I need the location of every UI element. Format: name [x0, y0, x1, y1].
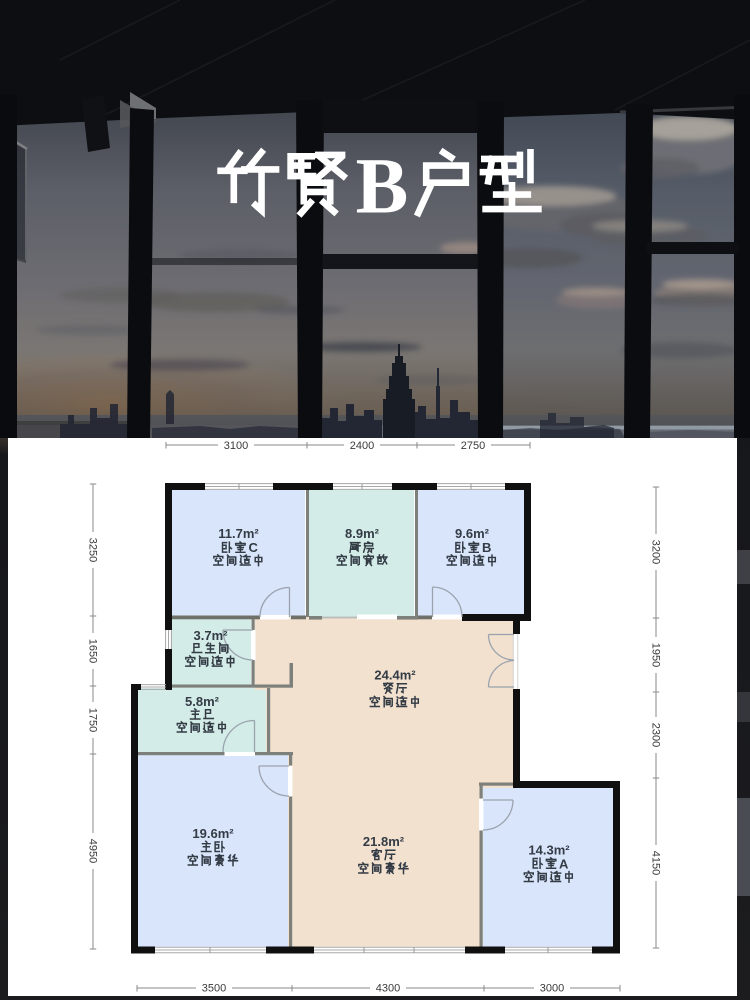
- svg-text:1950: 1950: [650, 643, 662, 667]
- svg-text:3250: 3250: [87, 538, 99, 562]
- svg-text:21.8m²: 21.8m²: [363, 834, 405, 849]
- svg-text:1750: 1750: [87, 708, 99, 732]
- svg-text:2750: 2750: [461, 440, 485, 452]
- svg-text:19.6m²: 19.6m²: [192, 826, 234, 841]
- svg-text:2400: 2400: [350, 440, 374, 452]
- svg-text:B: B: [482, 540, 491, 555]
- svg-text:2300: 2300: [650, 723, 662, 747]
- svg-text:C: C: [249, 540, 259, 555]
- svg-text:24.4m²: 24.4m²: [374, 668, 416, 683]
- svg-text:3100: 3100: [224, 440, 248, 452]
- svg-text:A: A: [559, 857, 569, 872]
- svg-text:9.6m²: 9.6m²: [455, 526, 490, 541]
- svg-text:3000: 3000: [540, 983, 564, 995]
- svg-text:5.8m²: 5.8m²: [185, 694, 220, 709]
- svg-text:8.9m²: 8.9m²: [345, 526, 380, 541]
- svg-text:3500: 3500: [202, 983, 226, 995]
- svg-text:B: B: [356, 144, 409, 231]
- svg-text:3200: 3200: [650, 540, 662, 564]
- svg-text:4950: 4950: [87, 839, 99, 863]
- svg-text:4150: 4150: [650, 851, 662, 875]
- svg-text:14.3m²: 14.3m²: [528, 843, 570, 858]
- svg-text:11.7m²: 11.7m²: [218, 526, 259, 541]
- svg-text:4300: 4300: [376, 983, 400, 995]
- svg-text:3.7m²: 3.7m²: [194, 628, 229, 643]
- svg-text:1650: 1650: [87, 639, 99, 663]
